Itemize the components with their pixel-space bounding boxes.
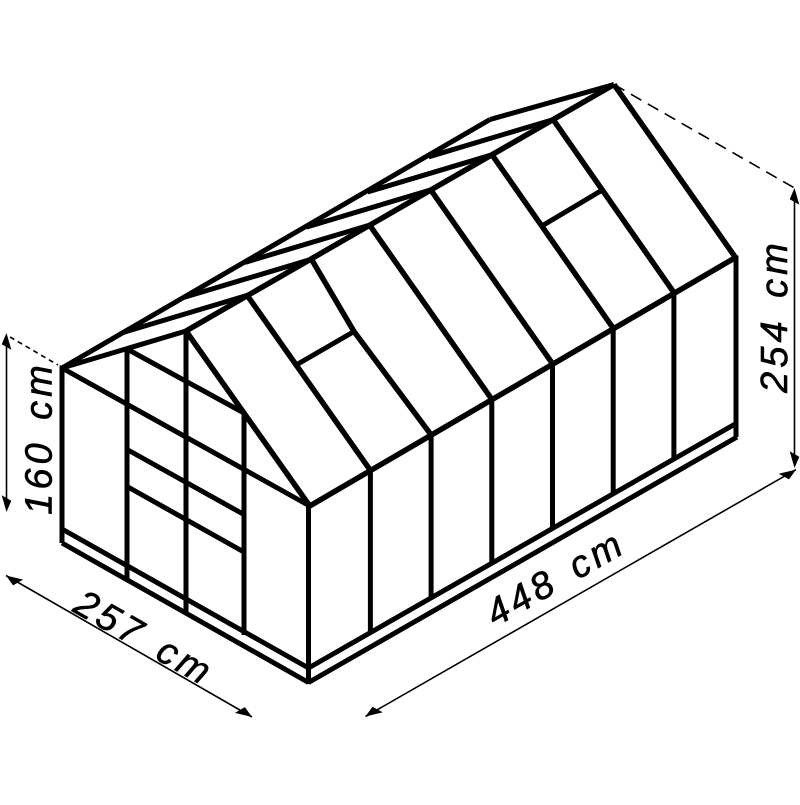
svg-text:254 cm: 254 cm (754, 239, 796, 394)
svg-text:160 cm: 160 cm (19, 361, 61, 515)
